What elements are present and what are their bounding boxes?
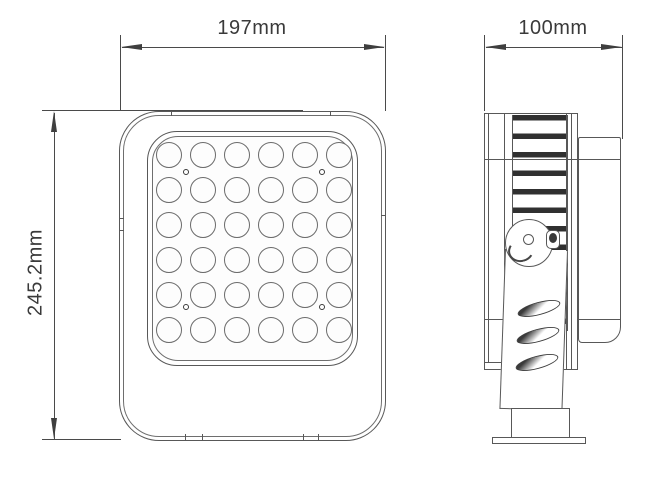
depth-dimension-label: 100mm [493, 17, 613, 40]
led-lens [190, 212, 216, 238]
led-lens [156, 212, 182, 238]
led-lens [156, 317, 182, 343]
front-top-seam-tick-left [171, 111, 172, 116]
bracket-stem [511, 408, 570, 438]
led-lens [292, 212, 318, 238]
led-lens [190, 247, 216, 273]
height-dim-arrow-bottom-icon [51, 418, 57, 439]
led-lens [224, 317, 250, 343]
led-lens [190, 177, 216, 203]
led-lens [258, 177, 284, 203]
led-lens [326, 212, 352, 238]
led-lens [224, 247, 250, 273]
front-top-seam-tick-right [330, 111, 331, 116]
led-lens [292, 177, 318, 203]
screw-dot [319, 169, 325, 175]
led-lens [190, 142, 216, 168]
led-lens [156, 142, 182, 168]
led-lens [224, 212, 250, 238]
front-bottom-seam-tick-3 [303, 434, 304, 441]
side-backplate-bottom-line [484, 319, 504, 320]
side-frontplate-line-1 [566, 113, 567, 370]
led-lens [190, 317, 216, 343]
depth-dim-extension-right [622, 35, 623, 139]
led-lens [326, 177, 352, 203]
led-lens [190, 282, 216, 308]
depth-dim-arrow-left-icon [485, 44, 506, 50]
width-dim-arrow-right-icon [364, 44, 385, 50]
led-lens [224, 282, 250, 308]
led-lens [292, 247, 318, 273]
led-lens [258, 142, 284, 168]
led-lens [258, 247, 284, 273]
depth-dim-arrow-right-icon [601, 44, 622, 50]
side-backplate-line-outer [488, 113, 489, 362]
front-right-seam-tick-1 [381, 215, 386, 216]
led-lens [258, 282, 284, 308]
led-lens [326, 142, 352, 168]
front-left-seam-tick-1 [119, 218, 124, 219]
height-dim-line [54, 113, 55, 439]
front-bottom-seam-tick-1 [185, 434, 186, 441]
pivot-center-hole [523, 234, 534, 245]
width-dim-extension-right [385, 35, 386, 111]
technical-drawing-canvas: 197mm 100mm 245.2mm [0, 0, 672, 480]
led-lens [326, 317, 352, 343]
led-lens [258, 317, 284, 343]
front-bottom-seam-tick-2 [202, 434, 203, 441]
width-dim-arrow-left-icon [121, 44, 142, 50]
side-part-line [484, 159, 621, 160]
led-lens [156, 177, 182, 203]
height-dim-arrow-top-icon [51, 111, 57, 132]
front-left-seam-tick-2 [119, 230, 124, 231]
led-lens [292, 317, 318, 343]
side-front-rim [578, 137, 621, 343]
led-lens [292, 282, 318, 308]
led-lens [156, 282, 182, 308]
bracket-base-plate [492, 437, 586, 444]
screw-dot [319, 304, 325, 310]
width-dim-line [122, 47, 384, 48]
led-lens [326, 282, 352, 308]
width-dimension-label: 197mm [192, 17, 312, 40]
side-frontplate-line-2 [571, 113, 572, 370]
screw-dot [183, 169, 189, 175]
side-rim-bottom-line [578, 319, 621, 320]
front-bottom-seam-tick-4 [318, 434, 319, 441]
height-dimension-label: 245.2mm [25, 213, 48, 333]
led-lens [292, 142, 318, 168]
led-lens [224, 142, 250, 168]
led-lens [326, 247, 352, 273]
height-dim-extension-bottom [42, 439, 121, 440]
screw-dot [183, 304, 189, 310]
led-lens [224, 177, 250, 203]
led-lens [258, 212, 284, 238]
led-lens [156, 247, 182, 273]
pivot-lock-tab-dot [549, 233, 557, 243]
